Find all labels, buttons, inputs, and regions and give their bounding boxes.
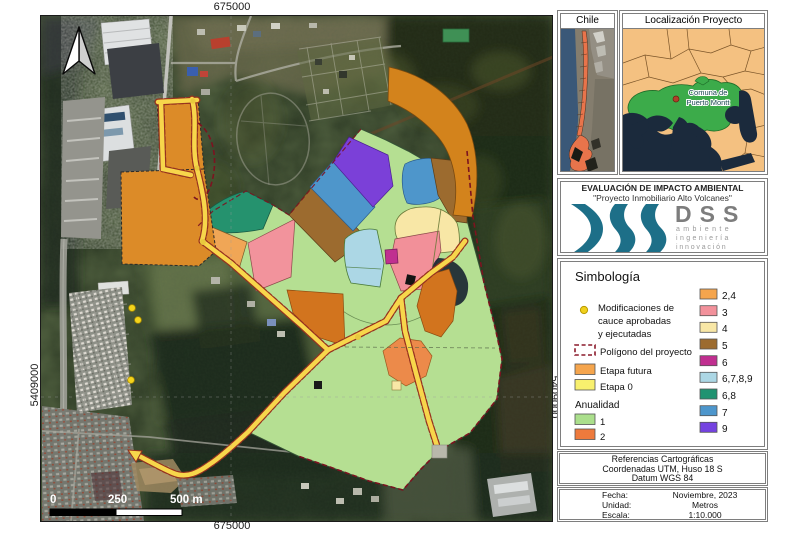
svg-text:Comuna de: Comuna de	[689, 88, 728, 97]
svg-text:250: 250	[108, 494, 127, 506]
svg-text:500 m: 500 m	[170, 494, 203, 506]
svg-text:Puerto Montt: Puerto Montt	[687, 98, 731, 107]
svg-text:0: 0	[50, 494, 56, 506]
